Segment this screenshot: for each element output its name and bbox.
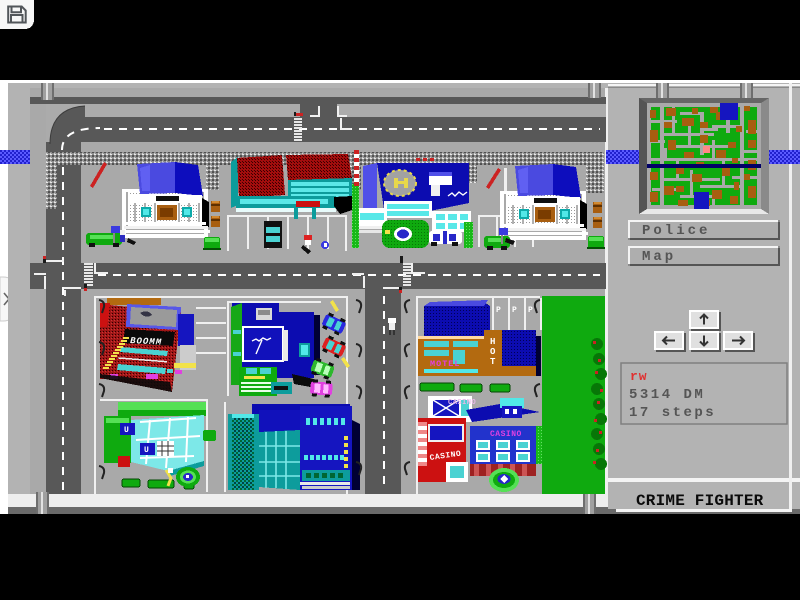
svg-text:Police: Police — [642, 223, 710, 239]
svg-text:CASINO: CASINO — [448, 399, 476, 407]
svg-text:5314 DM: 5314 DM — [629, 387, 705, 403]
svg-text:rw: rw — [630, 369, 648, 384]
svg-text:P: P — [496, 306, 501, 315]
svg-text:BOOMM: BOOMM — [130, 336, 162, 348]
svg-text:P: P — [528, 306, 533, 315]
svg-text:17 steps: 17 steps — [629, 405, 716, 421]
svg-text:O: O — [490, 347, 496, 357]
svg-text:MOTEL: MOTEL — [430, 359, 461, 369]
svg-text:U: U — [144, 446, 149, 455]
svg-text:P: P — [512, 306, 517, 315]
svg-text:Map: Map — [642, 249, 676, 265]
svg-text:CASINO: CASINO — [490, 430, 522, 439]
svg-text:U: U — [124, 426, 129, 435]
svg-text:CRIME FIGHTER: CRIME FIGHTER — [636, 492, 764, 510]
svg-text:T: T — [490, 357, 496, 367]
svg-text:H: H — [490, 337, 495, 347]
